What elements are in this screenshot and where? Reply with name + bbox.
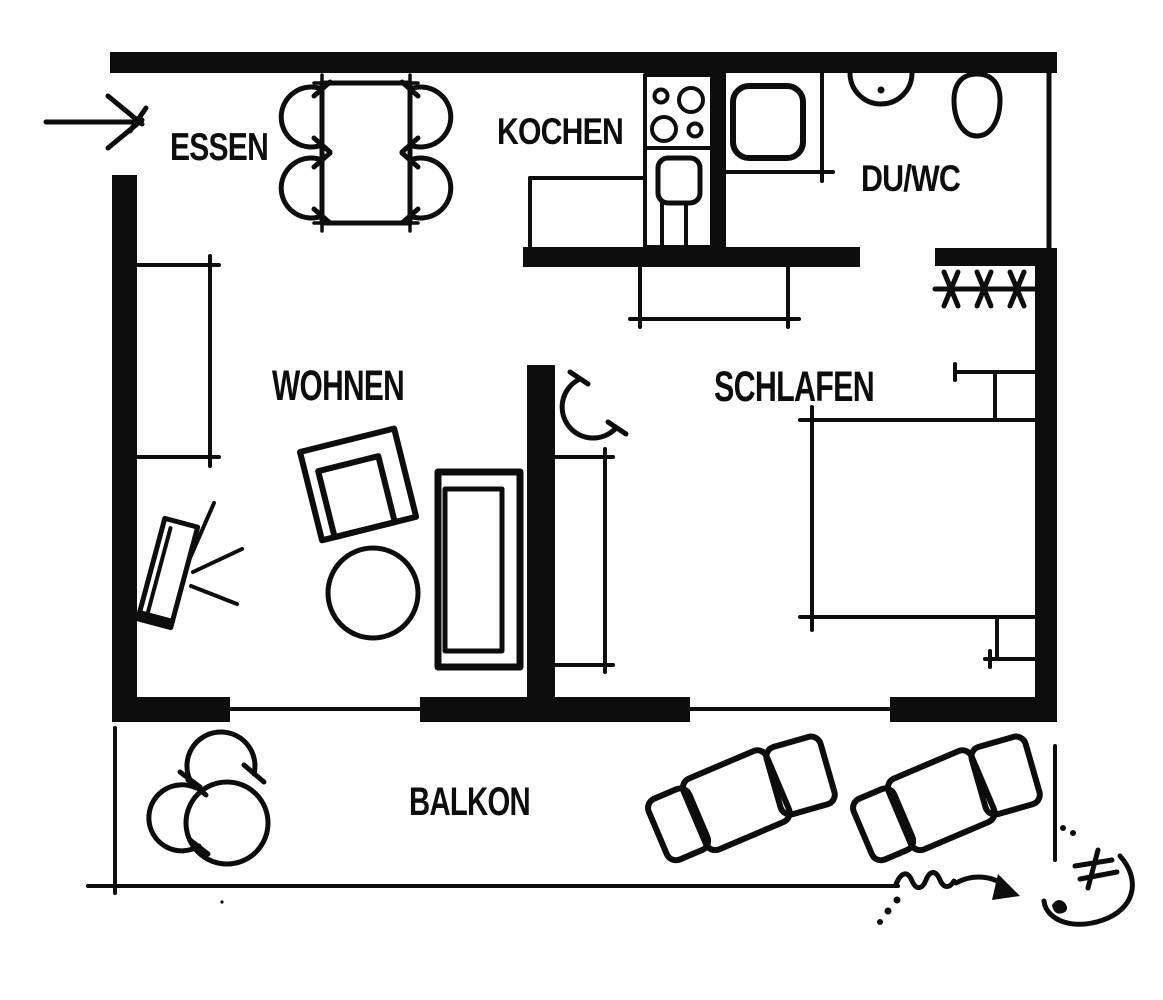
nightstand-top (955, 364, 1035, 420)
tv-signal-lines (190, 503, 242, 604)
room-label-essen: ESSEN (170, 126, 268, 169)
room-label-schlafen: SCHLAFEN (714, 363, 874, 411)
shower-tray (733, 86, 803, 158)
dining-sideboard (137, 256, 219, 466)
balcony-area (149, 725, 1050, 870)
room-label-kochen: KOCHEN (497, 111, 623, 152)
coffee-table (328, 548, 418, 638)
living-area (136, 429, 520, 667)
top-wall (110, 52, 1057, 73)
balcony-chair (180, 732, 264, 787)
room-label-duwc: DU/WC (861, 158, 960, 199)
entrance-arrow (46, 96, 146, 148)
kitchen-area (530, 75, 712, 247)
right-wall (1035, 248, 1057, 722)
stove-burners (652, 88, 703, 141)
speck (220, 900, 223, 903)
squiggle-wave (896, 873, 954, 888)
toilet (954, 74, 1000, 136)
armchair (300, 429, 416, 541)
duwc-bottom-wall (935, 248, 1043, 266)
bottom-wall-middle (420, 697, 690, 722)
sun-lounger (643, 725, 845, 870)
bottom-wall-left (112, 697, 230, 722)
floor-plan: ESSEN KOCHEN DU/WC WOHNEN SCHLAFEN BALKO… (0, 0, 1163, 1000)
wardrobe (548, 449, 613, 672)
balcony-chair (149, 780, 208, 854)
washbasin (850, 73, 912, 104)
sun-lounger (848, 725, 1050, 870)
left-wall (112, 175, 137, 722)
balcony-table (186, 782, 268, 864)
sink-cabinet (645, 148, 712, 247)
tv-set (136, 503, 242, 628)
door-swing-arc (562, 372, 626, 438)
double-bed (800, 407, 1035, 630)
hall-sideboard (630, 268, 799, 327)
ink-blob (1052, 900, 1067, 914)
sink-basin (658, 158, 700, 203)
room-label-balkon: BALKON (409, 780, 530, 824)
sofa (438, 472, 520, 667)
room-label-wohnen: WOHNEN (272, 362, 404, 410)
nightstand-bottom (985, 617, 1035, 667)
floor-plan-drawing: ESSEN KOCHEN DU/WC WOHNEN SCHLAFEN BALKO… (0, 0, 1163, 1000)
clothes-rail-hatch (935, 272, 1037, 306)
living-bedroom-divider-wall (527, 365, 555, 705)
bottom-wall-right (890, 697, 1057, 722)
kitchen-bottom-wall (523, 247, 860, 267)
